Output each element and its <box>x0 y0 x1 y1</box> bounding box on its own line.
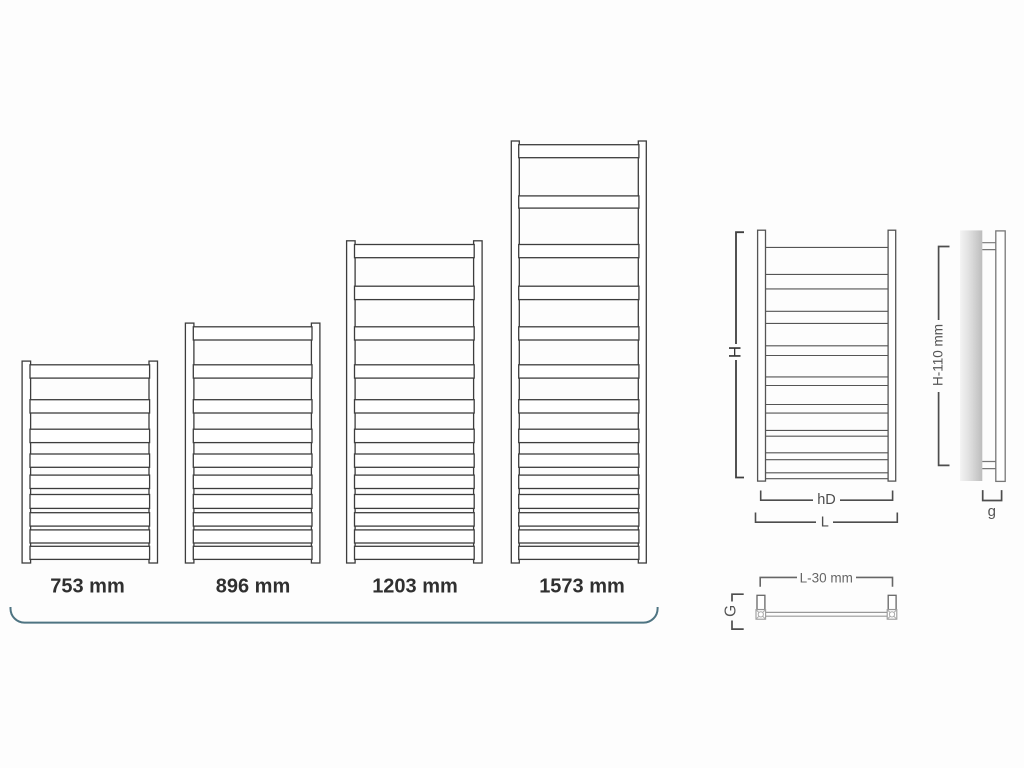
svg-text:G: G <box>723 605 740 617</box>
svg-text:1573 mm: 1573 mm <box>539 576 625 598</box>
svg-text:L: L <box>821 515 829 531</box>
svg-text:896 mm: 896 mm <box>216 576 291 598</box>
svg-text:hD: hD <box>817 492 836 508</box>
svg-text:753 mm: 753 mm <box>50 576 125 598</box>
svg-text:g: g <box>988 503 996 520</box>
svg-text:H-110 mm: H-110 mm <box>930 324 945 386</box>
svg-text:H: H <box>725 346 744 358</box>
svg-text:L-30 mm: L-30 mm <box>800 570 853 585</box>
svg-text:1203 mm: 1203 mm <box>372 576 458 598</box>
